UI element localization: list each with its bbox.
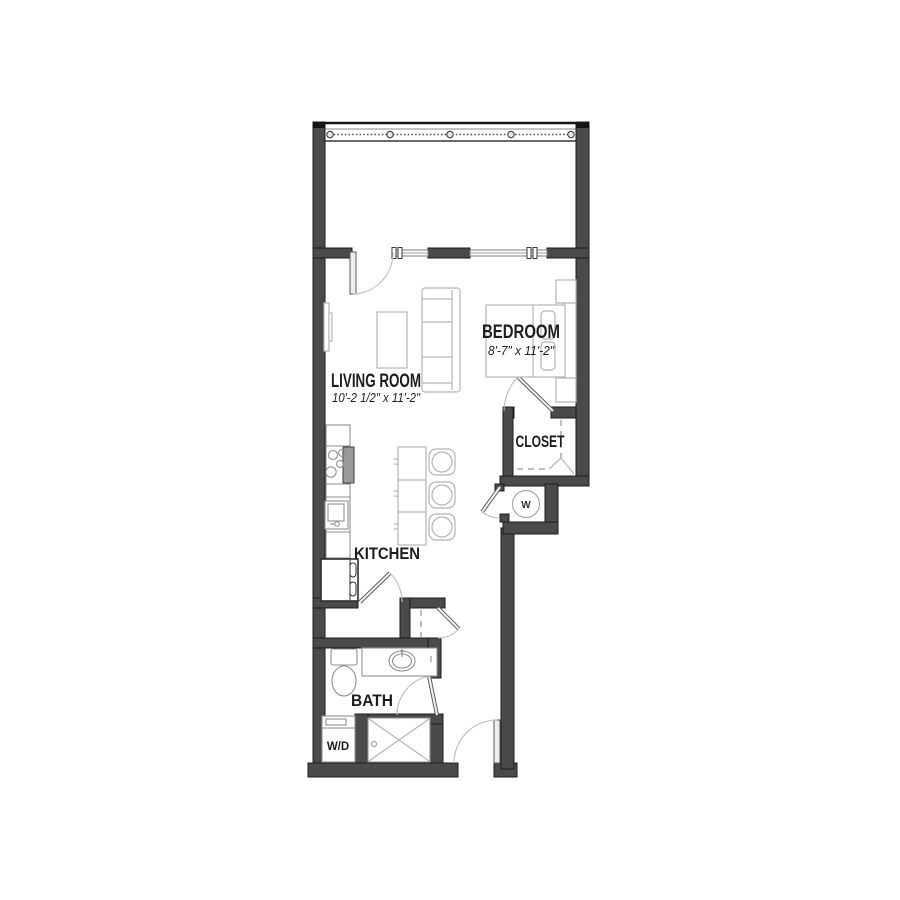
bath: W/D BATH [322, 648, 437, 762]
bath-top-wall [313, 638, 441, 648]
balcony-door [350, 252, 393, 294]
bedroom-label: BEDROOM [482, 322, 560, 343]
bottom-wall [308, 763, 458, 777]
left-wall-cap [313, 122, 325, 128]
kitchen-label: KITCHEN [354, 545, 420, 563]
water-heater-bottom-wall [503, 522, 558, 534]
living-room-label: LIVING ROOM [331, 371, 421, 392]
balcony [313, 123, 589, 141]
laundry-divider-wall [355, 714, 368, 763]
floorplan-drawing: LIVING ROOM 10'-2 1/2" x 11'-2" BEDROOM … [0, 0, 900, 900]
kitchen-counter [326, 425, 350, 558]
laundry-label: W/D [327, 741, 349, 753]
bedroom: BEDROOM 8'-7" x 11'-2" [482, 280, 576, 402]
kitchen-door [360, 573, 402, 602]
coffee-table [377, 312, 407, 368]
entry-door [454, 720, 500, 763]
left-wall [313, 122, 325, 777]
window-wall-right-segment [547, 248, 589, 258]
nightstand-bottom [556, 378, 576, 402]
hallway-east-wall [501, 528, 514, 769]
water-heater-door [482, 487, 500, 518]
railing-post [327, 131, 333, 137]
window-mullion [533, 248, 537, 259]
refrigerator [321, 559, 358, 601]
closet-door [504, 377, 553, 411]
right-wall-cap [576, 122, 589, 128]
railing-post [568, 131, 574, 137]
water-heater-label: W [521, 500, 531, 511]
right-wall [576, 122, 589, 486]
pantry-left-wall [400, 598, 410, 640]
floorplan-canvas: LIVING ROOM 10'-2 1/2" x 11'-2" BEDROOM … [0, 0, 900, 900]
shower [368, 718, 430, 762]
bar-stool [429, 449, 455, 475]
closet: CLOSET [516, 420, 575, 474]
living-room-window [392, 248, 428, 259]
washer-dryer: W/D [322, 716, 355, 762]
kitchen-island [394, 447, 426, 545]
closet-top-wall [551, 407, 576, 418]
window-mullion [398, 248, 402, 259]
railing-post [508, 131, 514, 137]
toilet [331, 649, 357, 696]
closet-corner-line [549, 458, 561, 469]
water-heater-door-bottom-jamb [500, 514, 509, 522]
water-heater-closet: W [513, 491, 540, 518]
window-wall-left-segment [313, 248, 352, 258]
railing-post [387, 131, 393, 137]
closet-corner-line [561, 458, 574, 474]
living-room-dimensions: 10'-2 1/2" x 11'-2" [332, 391, 421, 405]
closet-label: CLOSET [516, 433, 565, 451]
balcony-railing [325, 129, 576, 141]
sofa [422, 288, 460, 392]
living-room: LIVING ROOM 10'-2 1/2" x 11'-2" [324, 288, 460, 405]
bar-stool [429, 482, 455, 508]
bedroom-dimensions: 8'-7" x 11'-2" [488, 344, 555, 358]
kitchen-sink [325, 501, 348, 529]
bedroom-window [470, 248, 547, 259]
window-wall-center-pier [428, 248, 470, 258]
bath-label: BATH [351, 692, 393, 710]
bed-headboard [564, 303, 576, 378]
bar-stool [429, 514, 455, 540]
nightstand-top [556, 280, 576, 303]
bath-vanity [362, 648, 437, 676]
window-mullion [527, 248, 531, 259]
pantry-door [438, 608, 459, 638]
closet-left-wall [503, 407, 513, 478]
bath-door [397, 676, 437, 715]
railing-post [447, 131, 453, 137]
tv-unit [324, 303, 332, 351]
